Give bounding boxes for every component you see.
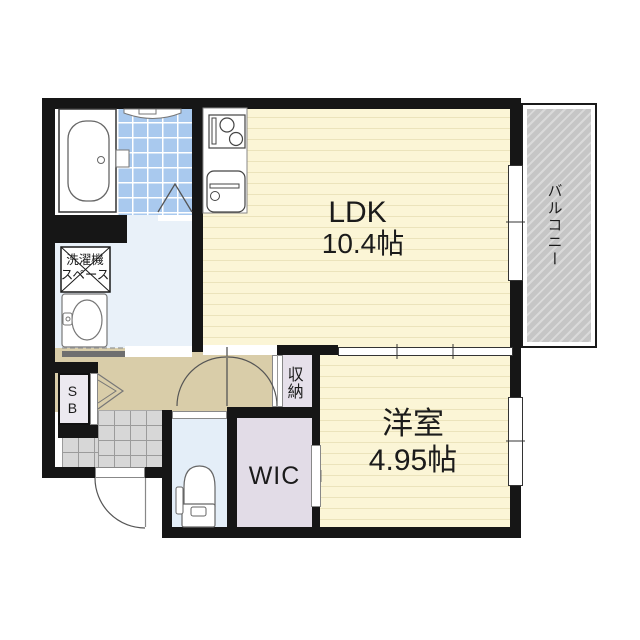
western-room-size-label: 4.95帖: [338, 444, 488, 477]
ldk-label: LDK: [290, 196, 425, 229]
entrance-door-swing: [95, 478, 146, 528]
laundry-line2: スペース: [53, 268, 117, 283]
laundry-line1: 洗濯機: [53, 253, 117, 268]
ldk-size-label: 10.4帖: [288, 229, 438, 260]
western-room-label: 洋室: [340, 407, 486, 441]
hall-door-swings: [177, 347, 277, 406]
kitchen-unit: [203, 108, 247, 213]
washbasin: [62, 294, 107, 347]
wic-label: WIC: [237, 463, 312, 491]
sb-label: SB: [64, 379, 79, 421]
window-dividers: [278, 222, 526, 482]
bathroom-counter: [116, 109, 181, 167]
toilet: [176, 466, 215, 527]
fixtures-layer: [0, 0, 640, 640]
bathtub: [59, 109, 116, 212]
storage-label: 収納: [284, 359, 302, 407]
balcony-label: バルコニー: [545, 178, 562, 273]
laundry-space-label: 洗濯機 スペース: [53, 253, 117, 283]
floorplan: LDK 10.4帖 洋室 4.95帖 WIC 収納 バルコニー SB 洗濯機 ス…: [0, 0, 640, 640]
sb-folding-door-icon: [98, 374, 123, 409]
folding-bath-door-icon: [158, 184, 192, 212]
